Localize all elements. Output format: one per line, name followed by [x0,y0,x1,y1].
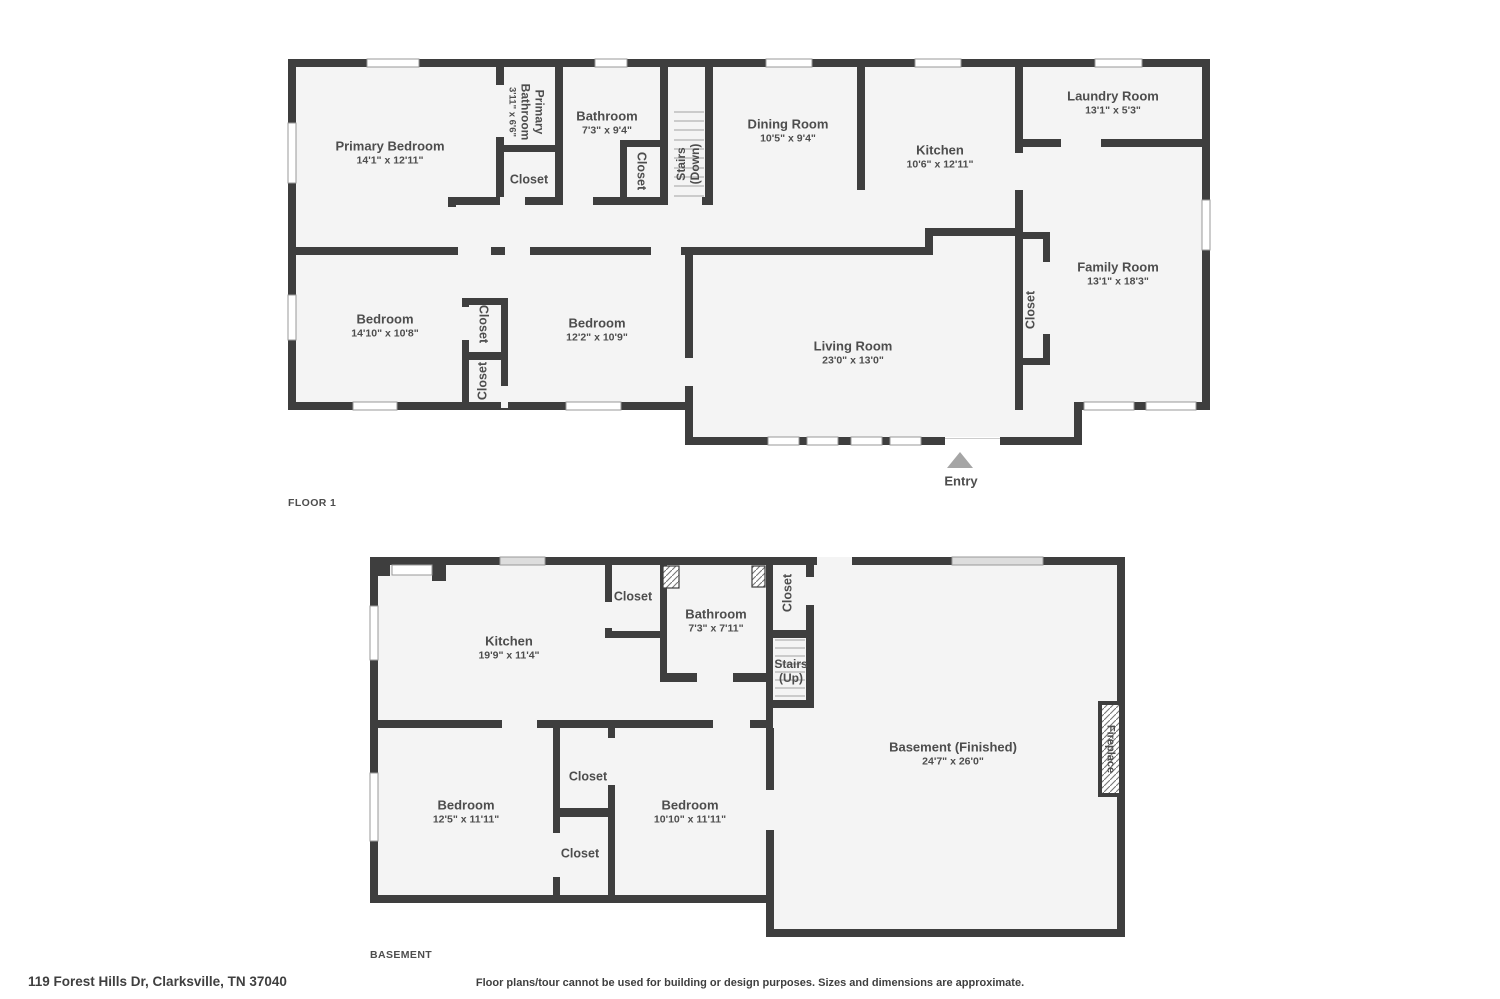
room-label-living-room: Living Room 23'0" x 13'0" [814,339,893,368]
closet-label: Closet [561,847,599,862]
room-label-basement-finished: Basement (Finished) 24'7" x 26'0" [889,740,1017,769]
fireplace-label: Fireplace [1104,725,1117,773]
room-label-laundry-room: Laundry Room 13'1" x 5'3" [1067,89,1159,118]
room-label-bedroom-basement-right: Bedroom 10'10" x 11'11" [654,798,726,827]
entry-label: Entry [944,473,977,488]
room-label-family-room: Family Room 13'1" x 18'3" [1077,260,1159,289]
chimney-hatch [752,566,765,587]
closet-label: Closet [614,590,652,605]
disclaimer-text: Floor plans/tour cannot be used for buil… [476,977,1024,989]
closet-label: Closet [510,173,548,188]
closet-label: Closet [634,152,649,190]
room-label-bedroom-basement-left: Bedroom 12'5" x 11'11" [433,798,499,827]
room-label-bedroom-f1-right: Bedroom 12'2" x 10'9" [566,316,628,345]
room-label-bedroom-f1-left: Bedroom 14'10" x 10'8" [351,312,419,341]
property-address: 119 Forest Hills Dr, Clarksville, TN 370… [28,974,287,989]
floor1-caption: FLOOR 1 [288,497,336,509]
room-label-dining-room: Dining Room 10'5" x 9'4" [748,117,829,146]
room-label-primary-bathroom: Primary Bathroom 3'11" x 6'6" [506,76,547,148]
entry-arrow-icon [947,452,973,468]
floor-plan-drawing [0,0,1500,999]
closet-label: Closet [569,770,607,785]
stairs-down-label: Stairs (Down) [674,144,702,185]
room-label-bathroom-f1: Bathroom 7'3" x 9'4" [576,109,637,138]
closet-label: Closet [476,305,491,343]
basement-caption: BASEMENT [370,949,432,961]
floor-plan-page: Primary Bedroom 14'1" x 12'11" Primary B… [0,0,1500,999]
stairs-up-label: Stairs (Up) [774,657,807,685]
room-label-kitchen-basement: Kitchen 19'9" x 11'4" [478,634,539,663]
closet-label: Closet [781,574,796,612]
chimney-hatch [663,566,679,588]
room-label-kitchen-f1: Kitchen 10'6" x 12'11" [907,143,974,172]
room-label-primary-bedroom: Primary Bedroom 14'1" x 12'11" [335,139,444,168]
closet-label: Closet [1024,291,1039,329]
closet-label: Closet [476,362,491,400]
room-label-bathroom-basement: Bathroom 7'3" x 7'11" [685,607,746,636]
